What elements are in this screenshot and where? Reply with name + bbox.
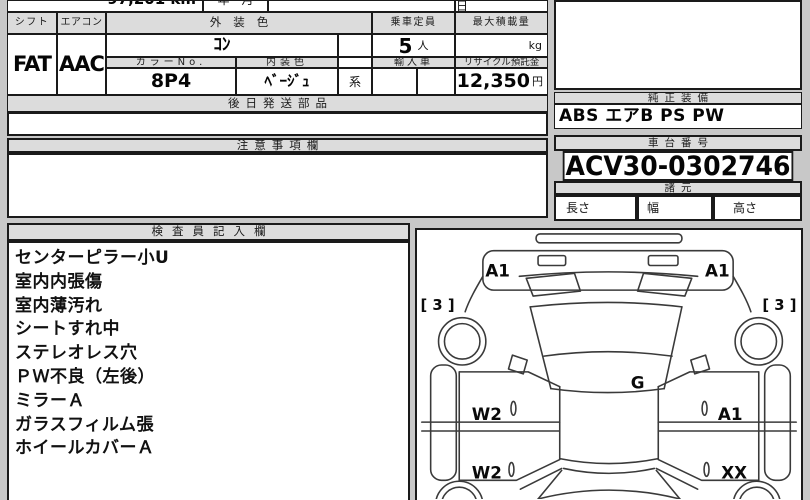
inspector-item: 室内薄汚れ <box>15 295 103 319</box>
year-month-label: 年 月 <box>217 0 253 6</box>
wiper-left <box>526 273 580 296</box>
recycle-value: 12,350 <box>457 72 530 91</box>
damage-label-door-front-right: A1 <box>718 404 743 424</box>
max-load-unit: kg <box>529 40 542 51</box>
recycle-header: リサイクル預託金 <box>455 57 548 68</box>
top-right-box <box>554 0 802 90</box>
notes-header: 注意事項欄 <box>7 138 548 153</box>
color-no-header: カラーNo. <box>106 57 236 68</box>
shift-value: FAT <box>7 34 57 95</box>
import-header: 輸入車 <box>372 57 455 68</box>
interior-color-value: ﾍﾞｰｼﾞｭ <box>236 68 338 95</box>
year-month-cell: 年 月 <box>203 0 268 12</box>
inspector-item: シートすれ中 <box>15 318 120 342</box>
empty-cell <box>338 34 372 57</box>
front-body <box>483 251 733 290</box>
odometer-value: 97,201 km <box>107 0 196 7</box>
front-right-door-handle <box>702 401 707 415</box>
auction-sheet: 97,201 km 年 月 月 日 シフト エアコン 外装色 乗車定員 最大積載… <box>0 0 810 500</box>
max-load-header: 最大積載量 <box>455 12 548 34</box>
inspector-list: センターピラー小U 室内内張傷 室内薄汚れ シートすれ中 ステレオレス穴 ＰＷ不… <box>7 241 410 500</box>
chassis-header: 車台番号 <box>554 135 802 151</box>
month-day-cell: 月 日 <box>455 0 548 12</box>
capacity-value: 5 <box>399 36 413 56</box>
right-mirror <box>691 355 710 374</box>
inspector-item: ホイールカバーＡ <box>15 437 155 461</box>
inspector-item: ステレオレス穴 <box>15 342 138 366</box>
aircon-header: エアコン <box>57 12 106 34</box>
left-mirror <box>509 355 528 374</box>
equipment-value: ABS エアB PS PW <box>554 104 802 129</box>
rear-right-wheel <box>733 481 780 499</box>
recycle-cell: 12,350円 <box>455 68 548 95</box>
shift-header: シフト <box>7 12 57 34</box>
max-load-cell: kg <box>455 34 548 57</box>
empty-cell <box>338 57 372 68</box>
month-day-label: 月 日 <box>456 0 547 12</box>
front-left-door-edge <box>459 372 560 387</box>
damage-label-glass: G <box>631 373 645 393</box>
width-cell: 幅 <box>637 195 713 221</box>
front-right-wheel <box>735 318 782 365</box>
chassis-number: ACV30-0302746 <box>563 151 794 181</box>
notes-box <box>7 153 548 218</box>
capacity-unit: 人 <box>417 40 428 51</box>
later-parts-header: 後日発送部品 <box>7 95 548 112</box>
empty-cell <box>417 68 455 95</box>
inspector-item: センターピラー小U <box>15 247 169 271</box>
car-top-view-diagram: A1 A1 [ 3 ] [ 3 ] G W2 A1 W2 XX <box>417 231 801 499</box>
damage-diagram-box: A1 A1 [ 3 ] [ 3 ] G W2 A1 W2 XX <box>415 228 803 500</box>
front-left-wheel <box>439 318 486 365</box>
odometer-cell: 97,201 km <box>7 0 203 12</box>
interior-color-suffix: 系 <box>338 68 372 95</box>
height-cell: 高さ <box>713 195 802 221</box>
damage-label-door-rear-right: XX <box>721 462 747 482</box>
import-cell <box>372 68 417 95</box>
interior-color-header: 内装色 <box>236 57 338 68</box>
later-parts-box <box>7 112 548 136</box>
length-cell: 長さ <box>554 195 637 221</box>
front-bumper <box>536 234 682 243</box>
specs-header: 諸元 <box>554 181 802 195</box>
rear-left-wheel <box>436 481 483 499</box>
color-no-value: 8P4 <box>106 68 236 95</box>
capacity-header: 乗車定員 <box>372 12 455 34</box>
inspector-item: ＰＷ不良（左後） <box>15 366 155 390</box>
recycle-unit: 円 <box>532 76 543 87</box>
damage-label-front-left: A1 <box>485 260 510 280</box>
inspector-item: ミラーＡ <box>15 390 85 414</box>
damage-label-door-front-left: W2 <box>472 404 502 424</box>
inspector-item: 室内内張傷 <box>15 271 103 295</box>
front-right-door-edge <box>658 372 759 387</box>
tire-grade-right: [ 3 ] <box>762 297 796 314</box>
rear-left-door-handle <box>509 463 514 477</box>
damage-label-door-rear-left: W2 <box>472 462 502 482</box>
aircon-value: AAC <box>57 34 106 95</box>
rear-right-door-handle <box>704 463 709 477</box>
inspector-header: 検査員記入欄 <box>7 223 410 241</box>
wiper-right <box>638 273 692 296</box>
empty-cell <box>268 0 455 12</box>
capacity-cell: 5人 <box>372 34 455 57</box>
inspector-item: ガラスフィルム張 <box>15 414 154 438</box>
windshield <box>530 302 682 306</box>
damage-label-front-right: A1 <box>705 260 730 280</box>
front-left-door-handle <box>511 401 516 415</box>
exterior-color-header: 外装色 <box>106 12 372 34</box>
car-outline <box>422 234 796 499</box>
tire-grade-left: [ 3 ] <box>421 297 455 314</box>
equipment-header: 純正装備 <box>554 92 802 104</box>
exterior-color-value: ｺﾝ <box>106 34 338 57</box>
